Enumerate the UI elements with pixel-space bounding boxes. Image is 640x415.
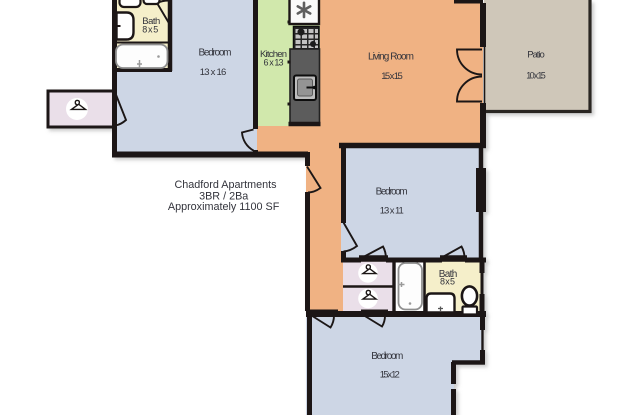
svg-text:8 x 5: 8 x 5 [142, 25, 158, 35]
svg-text:13 x 11: 13 x 11 [380, 205, 404, 216]
svg-text:Bedroom: Bedroom [371, 351, 403, 362]
svg-text:6 x 13: 6 x 13 [264, 58, 284, 68]
svg-text:15 x 15: 15 x 15 [381, 71, 403, 82]
svg-text:Bedroom: Bedroom [199, 48, 232, 59]
svg-text:15 x 12: 15 x 12 [380, 370, 400, 381]
svg-text:13 x 16: 13 x 16 [200, 67, 227, 78]
svg-text:Approximately 1100 SF: Approximately 1100 SF [168, 201, 280, 213]
svg-text:Chadford Apartments: Chadford Apartments [174, 179, 277, 191]
svg-text:10 x 15: 10 x 15 [526, 71, 546, 81]
svg-text:Living Room: Living Room [368, 52, 414, 63]
svg-text:Bedroom: Bedroom [376, 187, 408, 198]
svg-text:Patio: Patio [527, 50, 545, 61]
svg-text:8 x 5: 8 x 5 [440, 277, 455, 287]
